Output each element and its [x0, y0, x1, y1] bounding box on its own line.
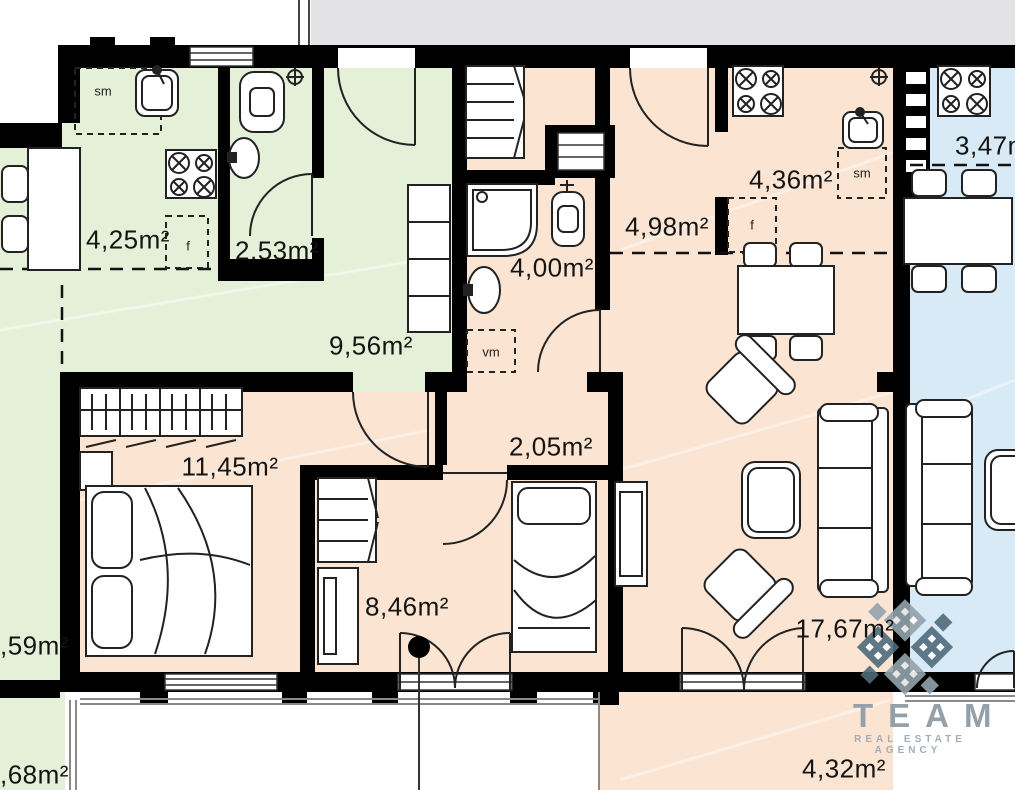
room-label-blue-kitchen: 3,47m²	[955, 131, 1015, 162]
green-toilet	[240, 72, 284, 132]
peach-entry-shelves	[466, 66, 524, 158]
room-label-peach-entry: 4,98m²	[625, 212, 709, 243]
peach-stove	[733, 66, 783, 116]
blue-sofa	[906, 400, 972, 595]
desk	[318, 568, 358, 664]
room-label-peach-balcony: 4,32m²	[802, 754, 886, 785]
green-basin	[228, 138, 259, 178]
green-stove	[166, 150, 216, 198]
green-sink	[136, 66, 178, 116]
single-bed	[512, 482, 596, 652]
room-label-peach-kitchen: 4,36m²	[749, 165, 833, 196]
agency-logo-name: TEAM	[838, 697, 978, 735]
small-room-wardrobe	[318, 478, 378, 562]
green-wardrobe	[408, 185, 450, 332]
room-label-green-balcony-partial: ,68m²	[0, 760, 69, 790]
floor-plan-drawing	[0, 0, 1015, 790]
tv-cabinet	[615, 482, 647, 586]
fixture-label-washer: vm	[482, 345, 499, 360]
fixture-label-peach-closet: sm	[853, 166, 870, 181]
room-label-peach-bathroom: 4,00m²	[510, 253, 594, 284]
room-label-peach-room: 8,46m²	[365, 592, 449, 623]
fixture-label-green-closet: sm	[94, 84, 111, 99]
room-label-peach-living: 17,67m²	[796, 614, 895, 645]
corridor-boundary	[297, 0, 311, 45]
agency-logo-tagline: REAL ESTATE AGENCY	[828, 734, 988, 756]
coffee-table	[742, 462, 800, 538]
room-label-green-room-partial: ,59m²	[0, 631, 69, 662]
peach-sink	[843, 108, 883, 148]
corridor-area	[300, 0, 1015, 48]
blue-coffee-table	[985, 450, 1015, 530]
room-label-peach-bedroom: 11,45m²	[182, 452, 279, 483]
room-label-green-kitchen: 4,25m²	[86, 225, 170, 256]
double-bed	[86, 486, 252, 656]
fixture-label-peach-fridge: f	[750, 218, 754, 233]
nightstand	[80, 452, 112, 490]
sofa	[818, 404, 888, 597]
room-label-peach-corridor: 2,05m²	[509, 432, 593, 463]
room-label-green-bathroom: 2,53m²	[235, 236, 319, 267]
floor-plan: 4,25m² 2,53m² 9,56m² ,59m² ,68m² 4,00m² …	[0, 0, 1015, 790]
room-label-green-hall: 9,56m²	[329, 331, 413, 362]
column	[408, 636, 430, 658]
fixture-label-green-fridge: f	[186, 239, 190, 254]
blue-stove	[938, 66, 990, 116]
shower	[467, 184, 537, 256]
